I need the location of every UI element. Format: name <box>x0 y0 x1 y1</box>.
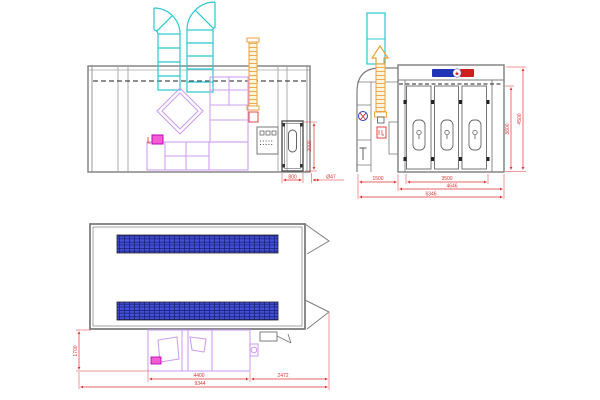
dim-text-duct-diameter: Ø47 <box>326 175 336 181</box>
plan-exhaust-lines <box>277 334 291 343</box>
filter-grid-lower-lines <box>165 142 209 170</box>
door-window-emblems <box>417 130 477 139</box>
chimney-base <box>247 106 259 110</box>
filter-grid-upper-lines <box>210 77 248 120</box>
left-duct-seams <box>158 48 180 76</box>
chimney-damper-box <box>249 112 258 122</box>
burner-label-marks <box>379 130 384 135</box>
dim-ext-door-width <box>282 173 312 183</box>
plan-machine-room <box>148 330 258 371</box>
right-duct-elbow <box>187 2 215 30</box>
door-emblem-icon-1 <box>417 130 421 134</box>
side-control-panel <box>257 127 278 154</box>
dim-text-machine-room-depth: 1700 <box>73 345 79 356</box>
fan-blade-icon <box>360 113 366 120</box>
brand-logo-left-block <box>432 69 455 77</box>
spray-booth-drawing: 2000 800 Ø47 <box>0 0 600 400</box>
floor-grating-top <box>117 235 278 253</box>
left-duct-elbow <box>154 8 180 34</box>
heat-exchanger-diamond <box>157 88 203 134</box>
cad-drawing-canvas: 2000 800 Ø47 <box>0 0 600 400</box>
floor-grating-bottom <box>117 302 278 320</box>
dim-ext-depth <box>76 330 149 389</box>
side-exhaust-ducts <box>154 2 215 92</box>
front-fold-doors <box>407 86 487 169</box>
fold-door-1 <box>407 86 432 169</box>
motor-shaft <box>251 347 257 353</box>
personnel-door-window <box>289 130 297 152</box>
brand-logo-star-icon: ★ <box>454 70 459 77</box>
airflow-up-arrow-icon <box>372 46 388 64</box>
fold-door-3 <box>462 86 487 169</box>
burner-unit <box>152 135 163 144</box>
brand-logo: ★ <box>432 69 474 78</box>
right-duct-column <box>187 30 213 92</box>
dim-text-machine-room-length: 4400 <box>193 373 204 379</box>
side-elevation-view: 2000 800 Ø47 <box>88 2 344 183</box>
door-emblem-tails <box>419 135 475 139</box>
cabinet-drain-symbol <box>360 148 367 160</box>
fold-door-2 <box>435 86 459 169</box>
dim-text-total-length: 9344 <box>194 381 205 387</box>
side-air-handling-unit <box>147 77 248 170</box>
front-booth <box>398 65 504 172</box>
machine-room-outline <box>148 330 250 371</box>
dim-text-cabinet-width: 1500 <box>372 176 383 182</box>
door-emblem-icon-2 <box>445 130 449 134</box>
brand-logo-right-block <box>460 69 474 77</box>
dim-text-right-section: 2472 <box>277 373 288 379</box>
plan-burner-unit <box>151 357 161 364</box>
side-chimney <box>247 38 259 110</box>
plan-exhaust-box <box>260 332 277 341</box>
heat-exchanger-diamond-inner <box>162 93 198 129</box>
fan-housing-2 <box>190 337 206 352</box>
intake-duct-valve <box>378 117 385 123</box>
cabinet-junction-column <box>389 122 398 154</box>
front-intake-duct <box>372 46 388 117</box>
chimney-column <box>249 42 257 106</box>
intake-duct-base <box>375 112 387 117</box>
dim-text-booth-width: 4646 <box>446 184 457 190</box>
plan-door-swing-bottom <box>305 300 329 329</box>
dim-text-door-opening: 3500 <box>441 176 452 182</box>
dim-text-inner-height: 3600 <box>505 123 511 134</box>
dim-text-total-height: 4500 <box>517 113 523 124</box>
dim-text-total-width: 6346 <box>425 192 436 198</box>
intake-duct-column <box>376 64 385 112</box>
personnel-door-frame <box>282 121 303 171</box>
dim-text-door-height: 2000 <box>307 140 313 151</box>
plan-view: 1700 4400 2472 9344 <box>73 224 329 390</box>
front-booth-outline <box>398 65 504 172</box>
burner-label-box <box>377 127 386 138</box>
right-duct-seams <box>187 43 213 82</box>
side-dimensions: 2000 800 Ø47 <box>282 122 344 183</box>
front-elevation-view: ★ 1500 3500 4646 6346 3600 4500 <box>357 13 526 199</box>
chimney-cap <box>247 38 259 42</box>
side-personnel-door <box>282 121 303 171</box>
plan-door-swing-top <box>305 224 329 254</box>
door-emblem-icon-3 <box>473 130 477 134</box>
dim-text-door-width: 800 <box>288 175 297 181</box>
